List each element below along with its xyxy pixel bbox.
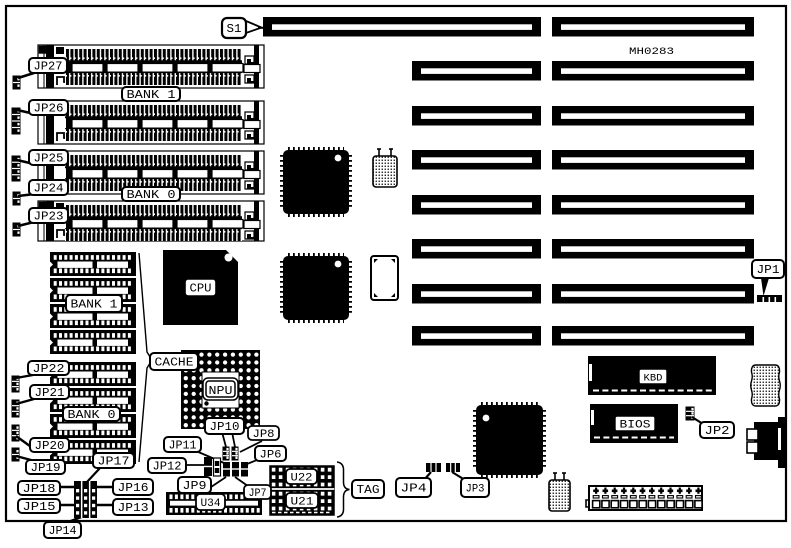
svg-text:NPU: NPU [209,385,233,398]
svg-text:U22: U22 [291,473,313,485]
svg-text:JP6: JP6 [260,450,282,462]
svg-text:JP22: JP22 [33,363,65,376]
svg-text:JP15: JP15 [23,501,56,514]
svg-text:JP18: JP18 [23,483,56,496]
svg-text:JP25: JP25 [34,153,64,166]
svg-text:U34: U34 [201,498,221,510]
svg-text:JP3: JP3 [466,484,485,496]
svg-text:BANK 1: BANK 1 [71,299,118,312]
svg-text:JP23: JP23 [34,211,64,224]
svg-text:JP4: JP4 [401,483,427,496]
svg-text:JP7: JP7 [249,488,267,500]
svg-text:JP11: JP11 [169,440,197,453]
svg-text:JP16: JP16 [118,482,149,495]
svg-text:JP10: JP10 [210,421,240,434]
svg-text:BANK 0: BANK 0 [68,409,116,422]
svg-text:JP9: JP9 [183,480,207,493]
svg-text:JP24: JP24 [34,183,64,196]
svg-text:U21: U21 [291,497,314,509]
svg-text:JP26: JP26 [34,103,64,116]
svg-text:JP27: JP27 [34,61,63,74]
svg-text:JP8: JP8 [253,429,275,441]
svg-text:JP2: JP2 [705,425,730,438]
svg-text:JP17: JP17 [98,456,130,469]
svg-text:CPU: CPU [190,283,212,296]
svg-text:KBD: KBD [644,373,663,385]
svg-text:BANK 1: BANK 1 [127,89,176,102]
svg-text:JP12: JP12 [153,461,182,474]
svg-text:JP21: JP21 [35,387,65,400]
svg-text:JP1: JP1 [757,264,780,277]
svg-text:JP20: JP20 [35,440,65,453]
svg-text:MH0283: MH0283 [629,46,674,58]
svg-text:JP19: JP19 [31,462,61,475]
svg-text:JP13: JP13 [118,502,149,515]
svg-text:BANK 0: BANK 0 [127,189,176,202]
svg-text:BIOS: BIOS [620,420,651,432]
svg-text:JP14: JP14 [49,525,77,538]
svg-text:S1: S1 [227,23,242,36]
svg-text:CACHE: CACHE [155,357,194,370]
svg-text:TAG: TAG [357,484,380,497]
